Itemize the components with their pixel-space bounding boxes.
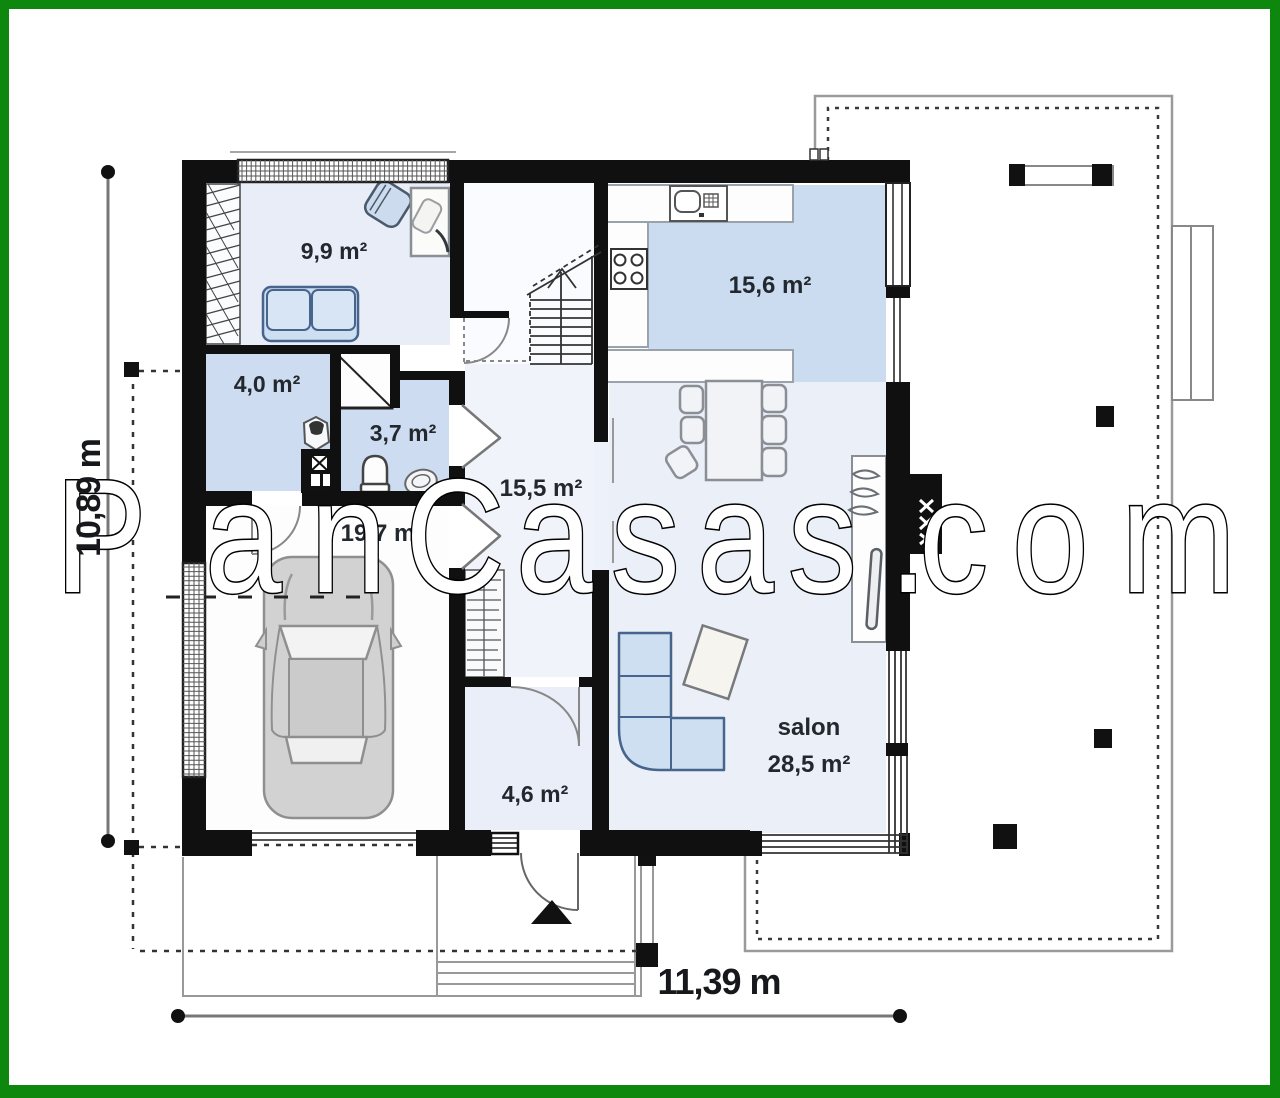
svg-text:4,0 m²: 4,0 m² [234, 371, 301, 397]
svg-text:10,89 m: 10,89 m [70, 439, 108, 557]
svg-text:PanCasas.com: PanCasas.com [55, 445, 1236, 626]
svg-text:11,39 m: 11,39 m [657, 961, 780, 1002]
svg-text:15,6 m²: 15,6 m² [729, 272, 812, 299]
svg-text:28,5 m²: 28,5 m² [768, 751, 851, 778]
svg-text:salon: salon [778, 714, 841, 741]
svg-text:3,7 m²: 3,7 m² [370, 420, 437, 446]
svg-text:4,6 m²: 4,6 m² [502, 781, 569, 807]
svg-text:9,9 m²: 9,9 m² [301, 238, 368, 264]
